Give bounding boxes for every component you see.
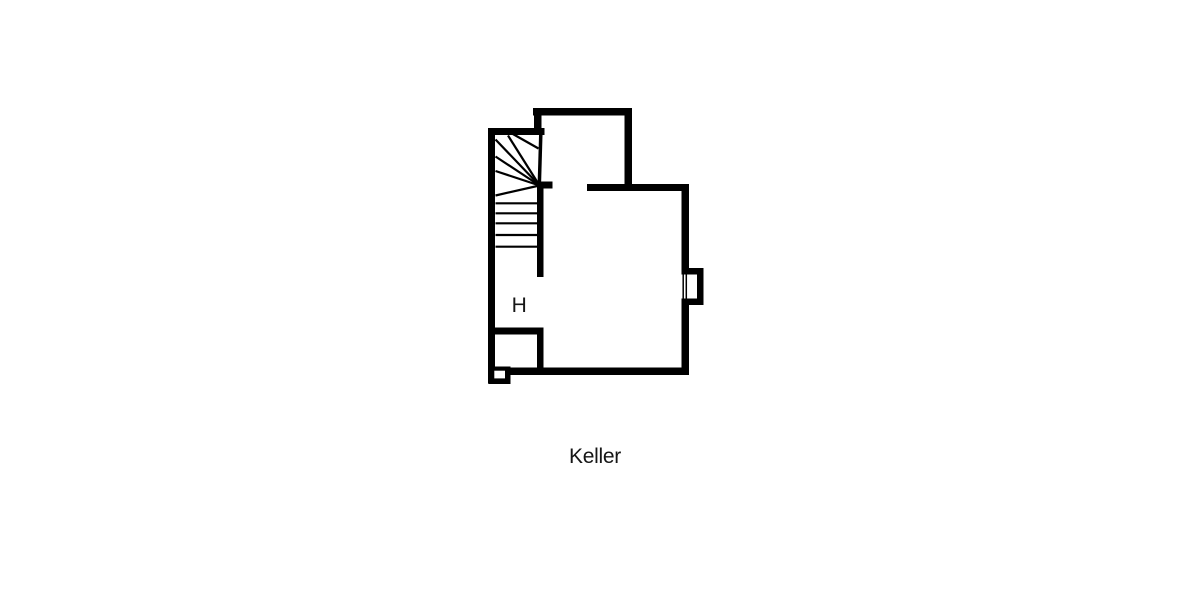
left-wall: [488, 128, 495, 384]
top-wall: [533, 108, 632, 116]
opening-layer: [494, 275, 689, 379]
stair-winder-line-1: [508, 136, 540, 186]
floorplan-drawing: [0, 0, 1200, 600]
floorplan-canvas: H Keller: [0, 0, 1200, 600]
small-room-right-wall: [537, 328, 544, 375]
floor-caption: Keller: [569, 445, 621, 469]
stair-newel-edge: [539, 134, 541, 186]
room-label-h: H: [512, 294, 527, 318]
corner-shaft-inner: [494, 371, 505, 379]
stair-right-wall: [537, 185, 544, 277]
notch-wall: [488, 128, 545, 135]
window-sill-bottom: [682, 299, 704, 306]
bottom-wall: [509, 368, 689, 376]
main-room-top-wall: [587, 184, 689, 191]
stair-winder-line-3: [496, 157, 540, 186]
top-right-vertical-wall: [625, 108, 633, 191]
stair-winder-line-5: [496, 186, 540, 196]
stair-and-window-line-layer: [496, 134, 687, 299]
small-room-top-wall: [488, 328, 544, 335]
